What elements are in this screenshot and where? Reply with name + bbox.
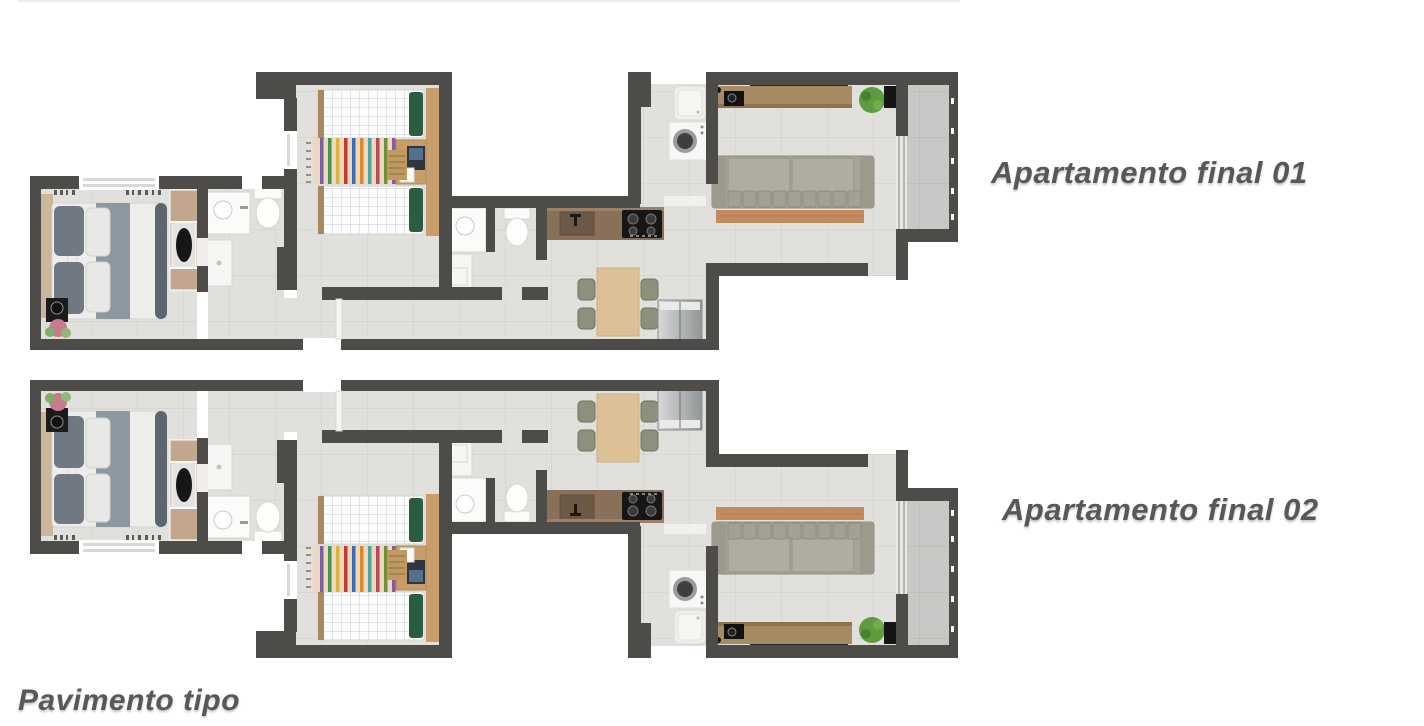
floor-type-label: Pavimento tipo	[18, 684, 240, 718]
floor-plan-graphic	[0, 0, 1424, 726]
page-edge-line	[18, 0, 960, 2]
apartment-2-label: Apartamento final 02	[1002, 492, 1319, 528]
apartment-plan-1	[30, 72, 958, 351]
page: Apartamento final 01 Apartamento final 0…	[0, 0, 1424, 726]
apartment-1-label: Apartamento final 01	[991, 155, 1308, 191]
apartment-plan-2	[30, 379, 958, 658]
